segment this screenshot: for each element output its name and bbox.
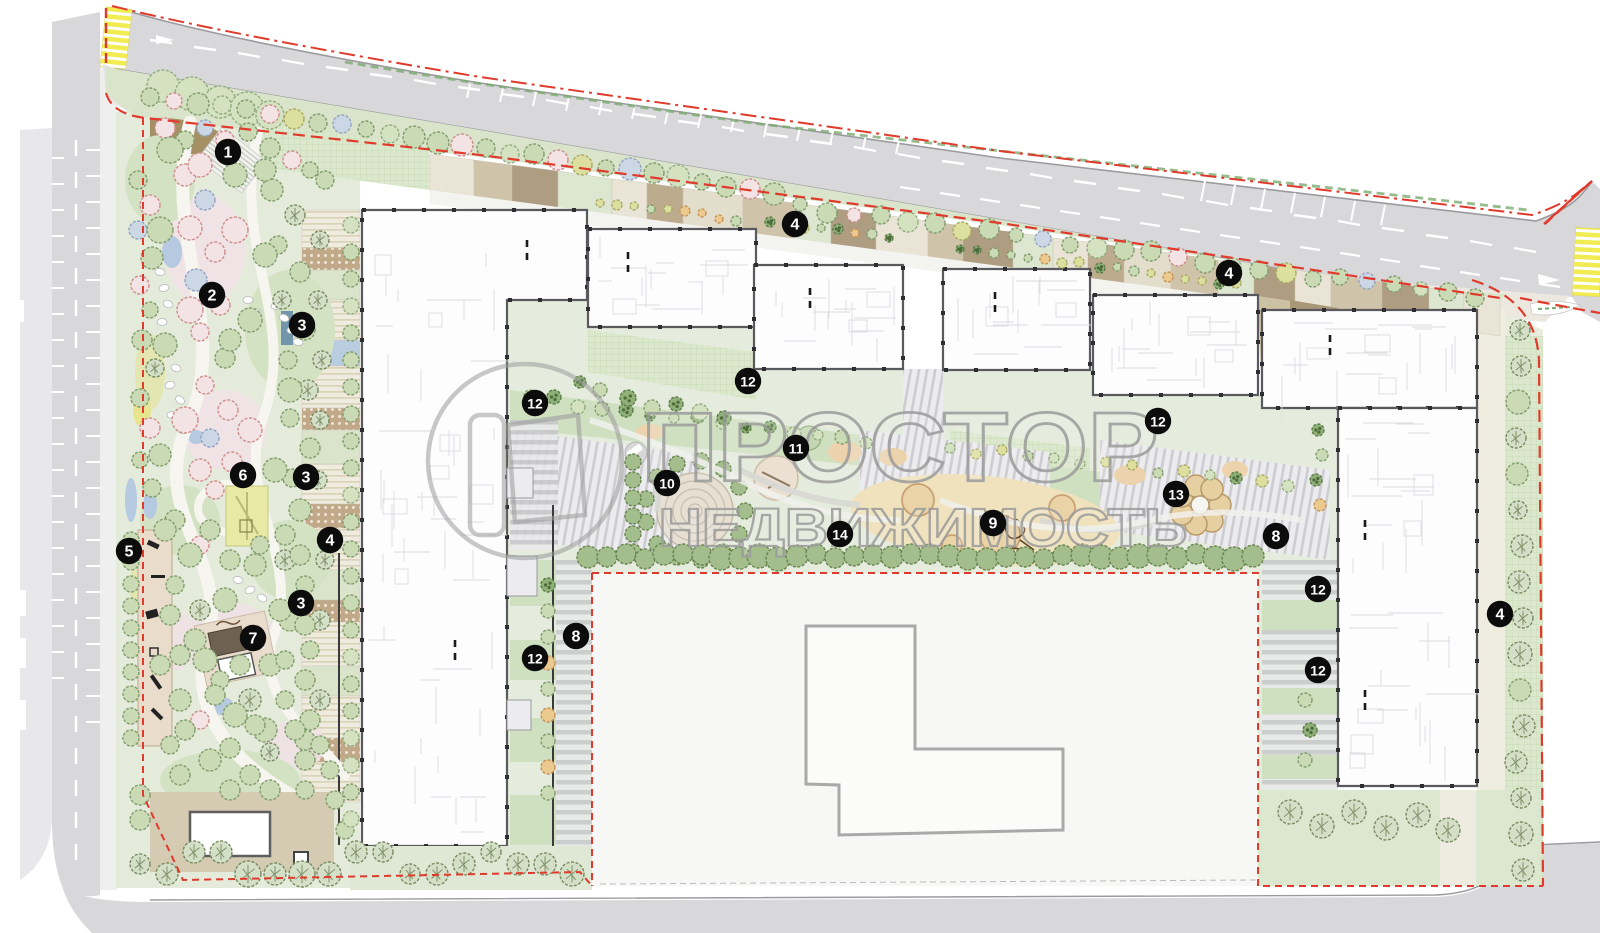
- svg-text:12: 12: [527, 651, 543, 667]
- svg-text:12: 12: [740, 374, 756, 390]
- svg-text:12: 12: [527, 396, 543, 412]
- svg-text:5: 5: [125, 544, 134, 561]
- svg-text:7: 7: [249, 631, 258, 648]
- svg-text:14: 14: [832, 527, 848, 543]
- svg-text:12: 12: [1310, 582, 1326, 598]
- svg-text:9: 9: [989, 516, 998, 533]
- svg-text:4: 4: [791, 217, 800, 234]
- svg-text:3: 3: [297, 596, 306, 613]
- svg-text:4: 4: [1225, 266, 1234, 283]
- svg-text:8: 8: [572, 629, 581, 646]
- svg-text:3: 3: [298, 318, 307, 335]
- svg-text:4: 4: [1496, 607, 1505, 624]
- svg-text:3: 3: [302, 470, 311, 487]
- svg-text:4: 4: [326, 533, 335, 550]
- svg-text:11: 11: [789, 441, 804, 457]
- svg-text:13: 13: [1168, 487, 1184, 503]
- svg-text:6: 6: [239, 468, 248, 485]
- svg-text:8: 8: [1272, 529, 1281, 546]
- svg-text:12: 12: [1150, 414, 1166, 430]
- svg-text:2: 2: [208, 288, 217, 305]
- svg-text:12: 12: [1310, 663, 1326, 679]
- svg-text:10: 10: [659, 476, 675, 492]
- svg-text:1: 1: [224, 145, 233, 162]
- svg-text:ПРОСТОР: ПРОСТОР: [642, 392, 1159, 502]
- svg-text:НЕДВИЖИМОСТЬ: НЕДВИЖИМОСТЬ: [659, 498, 1188, 558]
